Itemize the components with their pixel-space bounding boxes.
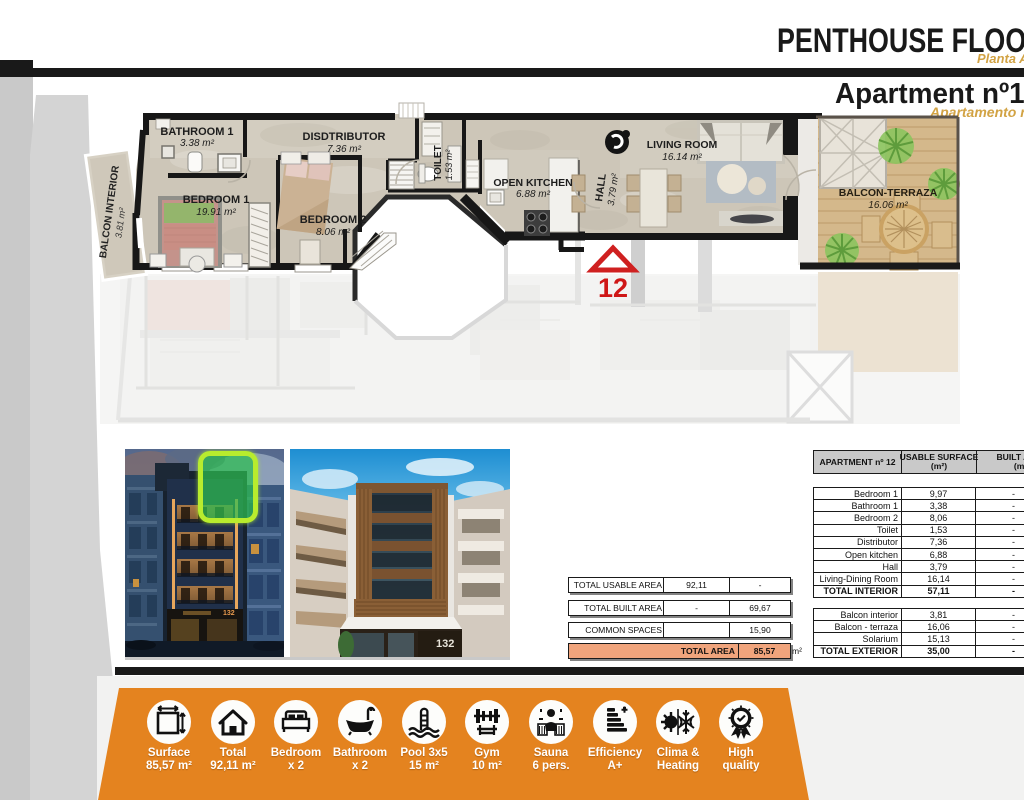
svg-text:LIVING ROOM: LIVING ROOM (647, 139, 718, 151)
svg-text:3.38 m²: 3.38 m² (180, 138, 215, 149)
svg-text:16.14 m²: 16.14 m² (662, 152, 702, 163)
svg-text:8.06 m²: 8.06 m² (316, 227, 351, 238)
svg-text:OPEN KITCHEN: OPEN KITCHEN (493, 177, 572, 189)
svg-text:DISDTRIBUTOR: DISDTRIBUTOR (303, 131, 386, 143)
svg-text:BALCON-TERRAZA: BALCON-TERRAZA (839, 187, 938, 199)
svg-text:1.53 m²: 1.53 m² (444, 149, 454, 181)
svg-text:19.91 m²: 19.91 m² (196, 207, 236, 218)
svg-text:BEDROOM 2: BEDROOM 2 (300, 214, 367, 226)
svg-text:TOILET: TOILET (433, 145, 444, 180)
svg-text:132: 132 (436, 638, 454, 650)
svg-text:BEDROOM 1: BEDROOM 1 (183, 194, 250, 206)
svg-text:7.36 m²: 7.36 m² (327, 144, 362, 155)
svg-text:12: 12 (598, 273, 628, 303)
svg-text:16.06 m²: 16.06 m² (868, 200, 908, 211)
svg-text:6.88 m²: 6.88 m² (516, 189, 551, 200)
svg-text:BATHROOM 1: BATHROOM 1 (160, 126, 233, 138)
svg-text:132: 132 (223, 610, 235, 617)
